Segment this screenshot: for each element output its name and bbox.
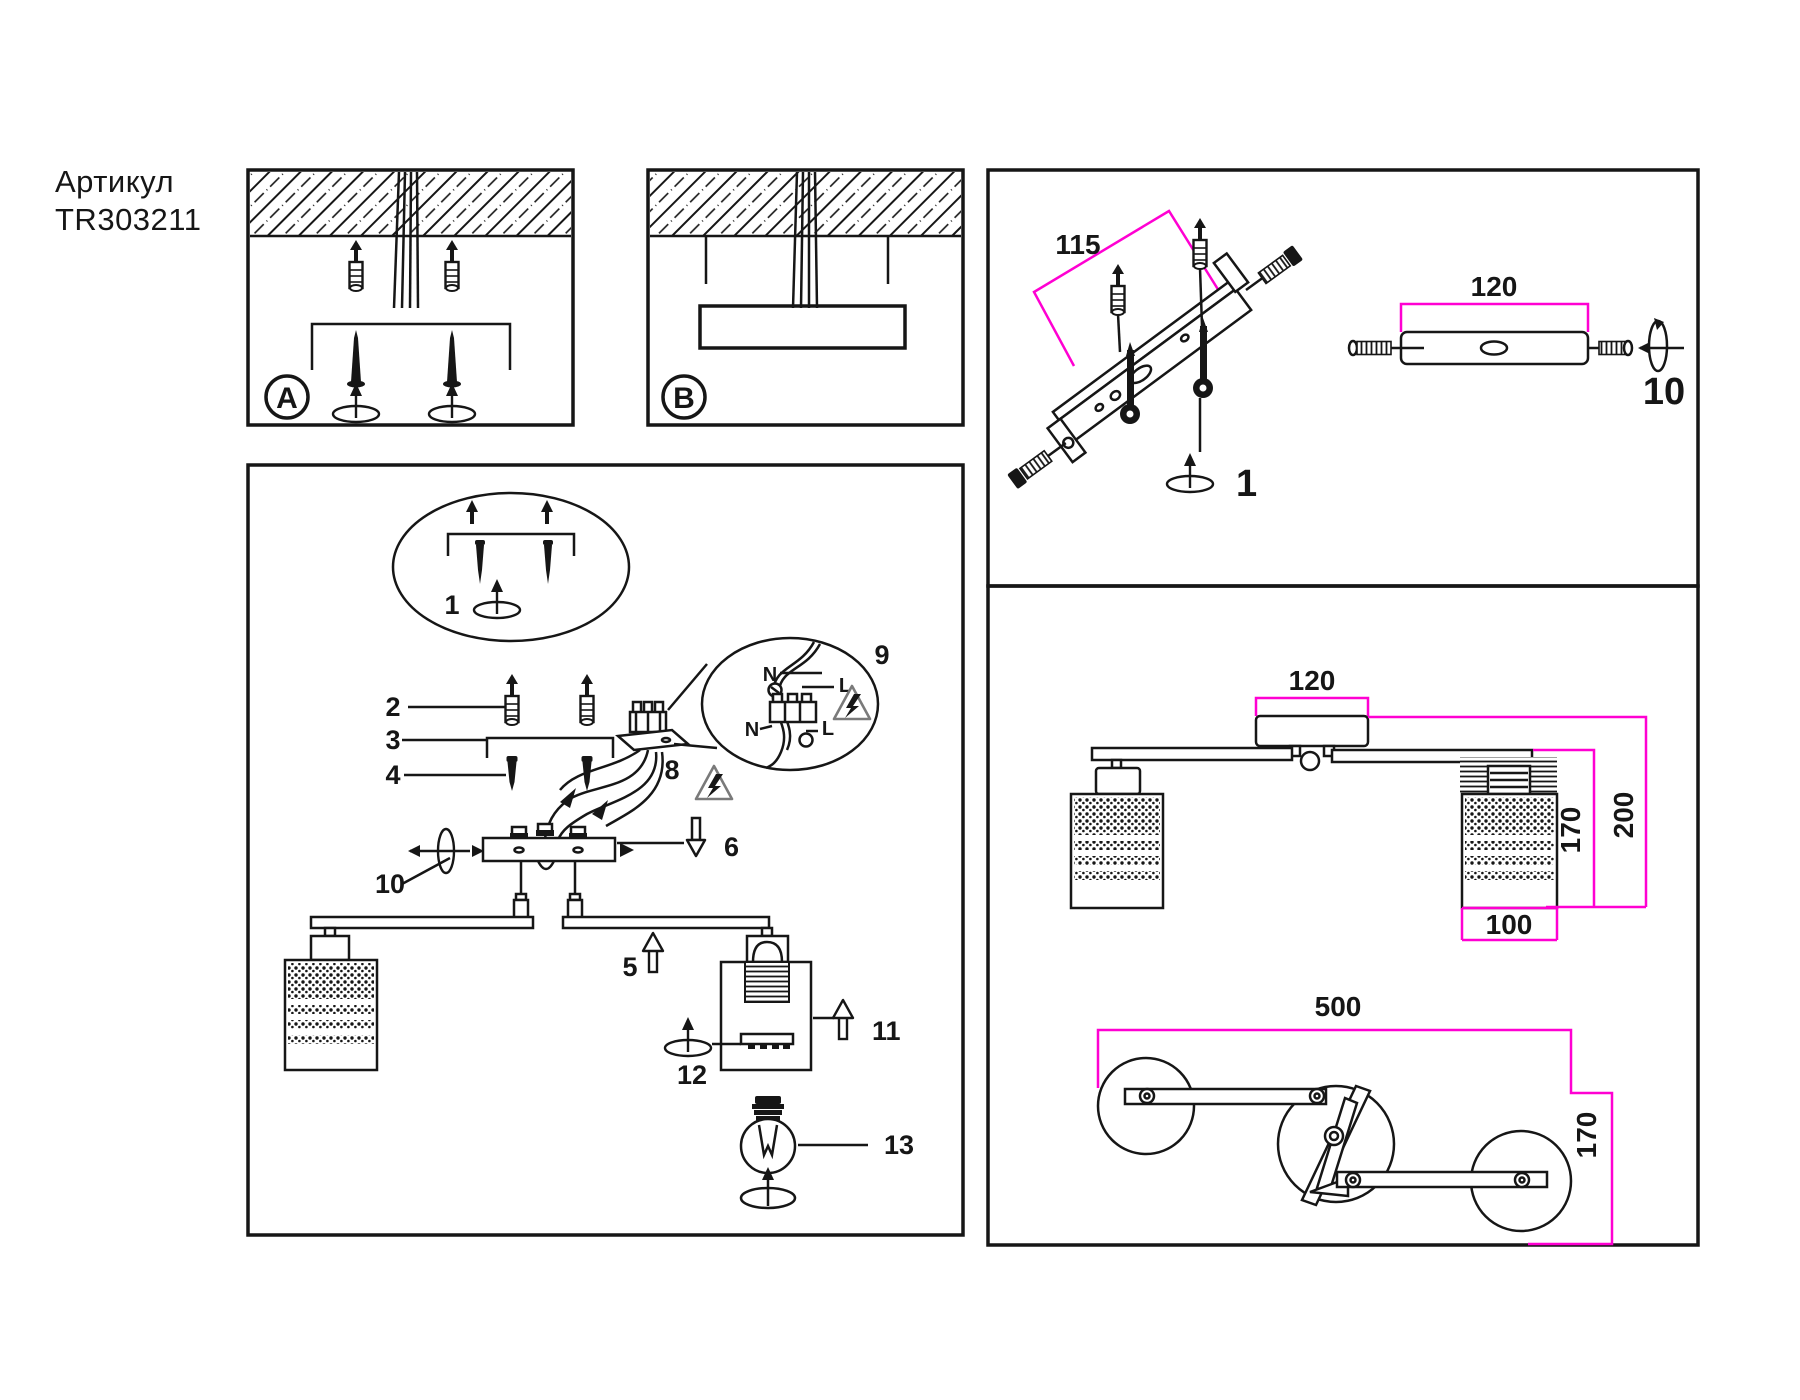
bulb-rotate — [741, 1167, 795, 1208]
screw-icon — [475, 540, 485, 584]
panel-a-label: A — [276, 382, 298, 415]
rotate-screw-icon — [408, 829, 470, 873]
dim-200-label: 200 — [1608, 792, 1639, 839]
article-label: Артикул — [55, 164, 174, 199]
dim-120-lines — [1401, 304, 1588, 332]
part-11-label: 11 — [872, 1016, 901, 1046]
side-screw-icon — [1588, 341, 1632, 355]
central-bracket-bar — [483, 824, 634, 869]
instruction-sheet: Артикул TR303211 A B — [0, 0, 1800, 1400]
wiring-detail-balloon: N L N L — [702, 638, 878, 770]
part-9-label: 9 — [874, 640, 889, 670]
shade-mesh — [288, 963, 374, 999]
fixture-top-view: 500 170 — [1098, 991, 1612, 1244]
part-12-label: 12 — [677, 1060, 707, 1090]
wall-anchor-icon — [506, 674, 519, 725]
rotate-screw-icon — [1638, 318, 1684, 371]
part-3-label: 3 — [385, 725, 400, 755]
rotate-arrow-icon — [1167, 453, 1213, 492]
part-8-label: 8 — [664, 755, 679, 785]
assembly-panel: 1 2 3 4 — [248, 465, 963, 1235]
right-lamp — [1460, 757, 1557, 908]
arrow-up-icon — [833, 1000, 853, 1039]
step-10-label: 10 — [1643, 371, 1685, 413]
part-2-anchors: 2 — [385, 674, 593, 725]
arrow-up-icon — [541, 500, 553, 524]
part-5-label: 5 — [622, 952, 637, 982]
part-13-callout: 13 — [798, 1130, 914, 1160]
dim-120-label: 120 — [1289, 665, 1336, 696]
dim-170-top-label: 170 — [1571, 1112, 1602, 1159]
left-lamp — [1071, 760, 1163, 908]
dim-100: 100 — [1462, 908, 1557, 940]
bracket-profile — [448, 534, 574, 556]
wire-bundle — [545, 750, 663, 840]
left-lamp — [285, 928, 377, 1070]
panel-b-ceiling-mount: B — [648, 170, 963, 425]
canopy — [1256, 716, 1368, 746]
line-label: L — [822, 718, 834, 740]
wall-anchor-icon — [446, 240, 459, 291]
dim-120-lines — [1256, 698, 1368, 716]
canopy-plate — [700, 306, 905, 348]
sheet-title: Артикул TR303211 — [55, 164, 201, 237]
dim-120-label: 120 — [1471, 271, 1518, 302]
side-screw-arrow — [620, 843, 634, 857]
bracket-front-view: 120 10 — [1349, 271, 1685, 413]
mounting-bracket-profile — [312, 324, 510, 370]
diagram-canvas: Артикул TR303211 A B — [0, 0, 1800, 1400]
dimension-panel: 120 — [988, 586, 1698, 1245]
socket-threads — [745, 962, 789, 1002]
article-number: TR303211 — [55, 202, 201, 237]
hinge — [1301, 752, 1319, 770]
part-6-callout: 6 — [617, 818, 739, 862]
step-1-label: 1 — [444, 590, 459, 620]
part-13-label: 13 — [884, 1130, 914, 1160]
wall-anchor-icon — [1194, 218, 1207, 269]
wall-anchor-icon — [1112, 264, 1125, 315]
arrow-up-icon — [643, 933, 663, 972]
neutral-label: N — [745, 719, 759, 741]
light-bulb — [741, 1096, 795, 1173]
panel-a-ceiling-mount: A — [248, 170, 573, 425]
dim-170-label: 170 — [1555, 807, 1586, 854]
step-1-label: 1 — [1236, 463, 1257, 505]
right-lamp-socket — [721, 928, 811, 1070]
fixture-front-view: 120 — [1071, 665, 1646, 940]
part-4-screws: 4 — [385, 756, 592, 791]
panel-b-label: B — [673, 382, 695, 415]
dim-115-label: 115 — [1055, 229, 1100, 260]
plug — [514, 900, 528, 918]
rotate-arrow-icon — [474, 579, 520, 618]
rotate-arrow-icon — [333, 383, 379, 422]
left-arm — [311, 917, 533, 928]
terminal-block — [618, 702, 688, 750]
dim-100-label: 100 — [1486, 909, 1533, 940]
rotate-arrow-icon — [665, 1017, 711, 1056]
step-1-callout: 1 — [1167, 453, 1257, 505]
left-shade-circle — [1098, 1058, 1194, 1154]
part-5-callout: 5 — [622, 933, 663, 982]
part-2-label: 2 — [385, 692, 400, 722]
part-11-callout: 11 — [813, 1000, 901, 1046]
plug — [568, 900, 582, 918]
bracket-install-balloon: 1 — [393, 493, 629, 641]
right-arm — [563, 917, 769, 928]
part-3-bracket: 3 — [385, 725, 613, 758]
dim-500-label: 500 — [1315, 991, 1362, 1022]
left-arm — [1092, 748, 1292, 760]
wall-anchor-icon — [350, 240, 363, 291]
part-6-label: 6 — [724, 832, 739, 862]
screw-icon — [543, 540, 553, 584]
part-10-callout: 10 — [375, 829, 484, 899]
part-4-label: 4 — [385, 760, 400, 790]
part-10-label: 10 — [375, 869, 405, 899]
wall-anchor-icon — [581, 674, 594, 725]
side-screw-icon — [1241, 245, 1303, 297]
arrow-up-icon — [466, 500, 478, 524]
bracket-isometric — [1007, 218, 1303, 489]
ceiling-hatch — [650, 172, 961, 235]
rotate-arrow-icon — [429, 383, 475, 422]
bracket-panel: 115 — [988, 170, 1698, 586]
mounting-screw-icon — [507, 756, 518, 791]
warning-triangle-icon — [696, 766, 732, 799]
